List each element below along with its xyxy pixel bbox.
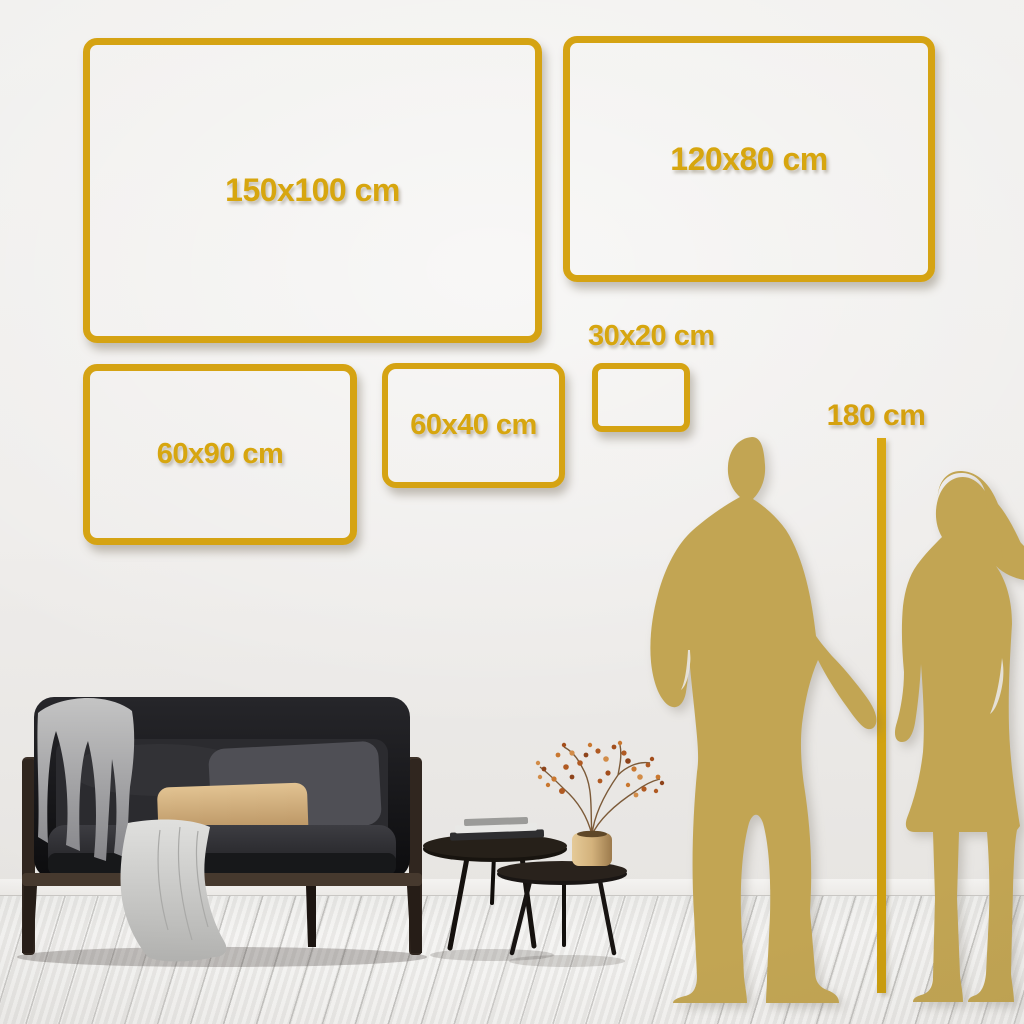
- size-frame-60x90: 60x90 cm: [83, 364, 357, 545]
- size-label-60x90: 60x90 cm: [157, 438, 284, 471]
- small-table-leg-right: [600, 881, 614, 953]
- coffee-tables: [412, 733, 677, 978]
- size-label-120x80: 120x80 cm: [670, 141, 827, 178]
- couple-silhouettes: [646, 428, 1024, 1013]
- sofa-stretcher-rail: [22, 873, 422, 886]
- size-frame-30x20: [592, 363, 690, 432]
- branch-berries: [536, 741, 664, 798]
- couple-graphic: [646, 428, 1024, 1008]
- size-label-150x100: 150x100 cm: [225, 172, 400, 209]
- large-table-leg-rear: [492, 855, 494, 903]
- man-silhouette: [650, 437, 876, 1003]
- size-guide-scene: 150x100 cm 120x80 cm 60x90 cm 60x40 cm 3…: [0, 0, 1024, 1024]
- size-label-30x20: 30x20 cm: [588, 320, 715, 353]
- sofa-leg-mid-right: [306, 886, 316, 947]
- size-label-60x40: 60x40 cm: [410, 409, 537, 442]
- coffee-tables-graphic: [412, 733, 677, 973]
- book-stack: [450, 817, 544, 841]
- brass-vase: [572, 831, 612, 866]
- size-frame-120x80: 120x80 cm: [563, 36, 935, 282]
- small-table-leg-left: [512, 881, 530, 953]
- table-shadow-small: [509, 955, 625, 967]
- large-table-leg-left: [450, 858, 467, 948]
- sofa-graphic: [10, 695, 435, 970]
- size-frame-60x40: 60x40 cm: [382, 363, 565, 488]
- size-frame-150x100: 150x100 cm: [83, 38, 542, 343]
- sofa: [10, 695, 435, 975]
